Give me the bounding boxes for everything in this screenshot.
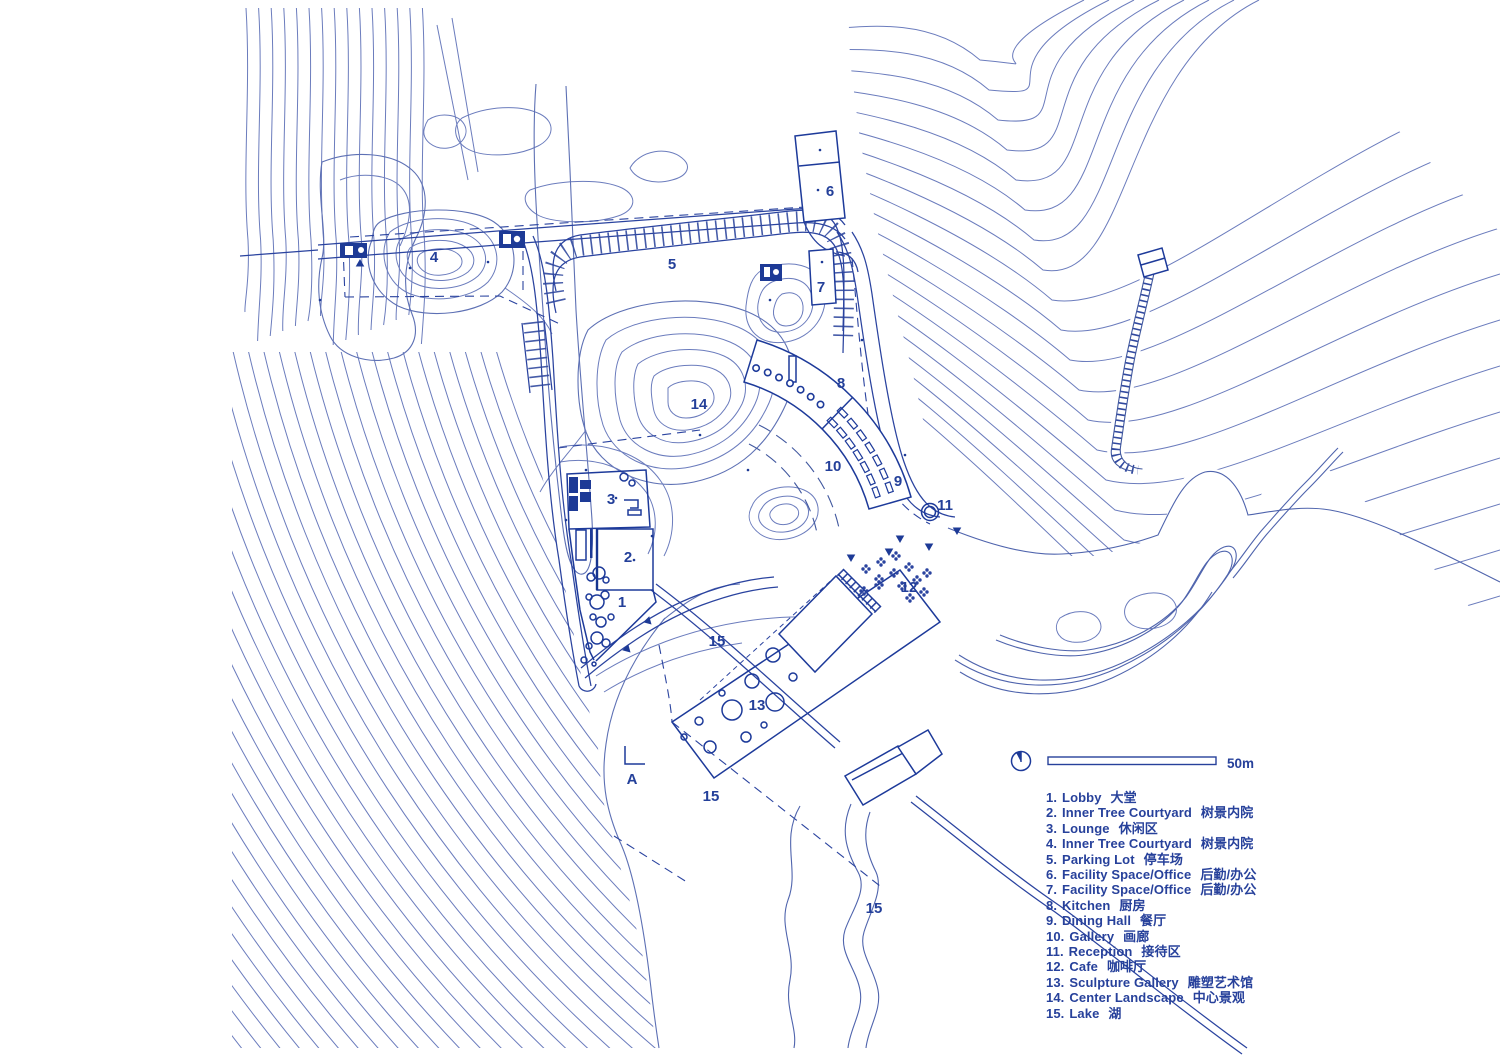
- legend-item: 5.Parking Lot停车场: [1046, 852, 1256, 867]
- contour-field-top-left: [245, 8, 425, 345]
- label-3: 3: [607, 491, 615, 508]
- legend-item: 10.Gallery画廊: [1046, 929, 1256, 944]
- plan-number-labels: 4 6 5 7 8 14 10 9 11 3 2 12 1 15 13 15 1…: [430, 183, 953, 917]
- legend-item: 2.Inner Tree Courtyard树景内院: [1046, 805, 1256, 820]
- legend-item: 14.Center Landscape中心景观: [1046, 990, 1256, 1005]
- site-plan-drawing: 4 6 5 7 8 14 10 9 11 3 2 12 1 15 13 15 1…: [0, 0, 1500, 1061]
- scale-bar: 50m: [1048, 756, 1254, 771]
- label-4: 4: [430, 249, 439, 266]
- label-7: 7: [817, 279, 825, 296]
- section-marker: [625, 746, 645, 764]
- contour-field-top-right: [452, 0, 1500, 645]
- label-11: 11: [937, 497, 953, 514]
- building-7: [809, 249, 858, 305]
- north-icon: [1012, 752, 1031, 771]
- legend-item: 3.Lounge休闲区: [1046, 821, 1256, 836]
- legend-item: 12.Cafe咖啡厅: [1046, 959, 1256, 974]
- scale-bar-label: 50m: [1227, 756, 1254, 771]
- terrain-blobs-top-left: [319, 18, 688, 574]
- stepped-path: [1111, 248, 1168, 471]
- legend-item: 15.Lake湖: [1046, 1006, 1256, 1021]
- label-section-a: A: [627, 771, 638, 788]
- label-8: 8: [837, 375, 845, 392]
- label-6: 6: [826, 183, 834, 200]
- contour-field-left: [0, 0, 1500, 1061]
- legend-item: 11.Reception接待区: [1046, 944, 1256, 959]
- legend-item: 13.Sculpture Gallery雕塑艺术馆: [1046, 975, 1256, 990]
- label-13: 13: [749, 697, 766, 714]
- legend-item: 8.Kitchen厨房: [1046, 898, 1256, 913]
- label-1: 1: [618, 594, 626, 611]
- label-5: 5: [668, 256, 676, 273]
- legend-item: 1.Lobby大堂: [1046, 790, 1256, 805]
- label-12: 12: [901, 579, 918, 596]
- label-15-lower: 15: [866, 900, 883, 917]
- label-2: 2: [624, 549, 632, 566]
- legend-item: 9.Dining Hall餐厅: [1046, 913, 1256, 928]
- dining-hall-complex: [744, 340, 911, 533]
- label-14: 14: [691, 396, 708, 413]
- label-10: 10: [825, 458, 842, 475]
- site-plan-canvas: 4 6 5 7 8 14 10 9 11 3 2 12 1 15 13 15 1…: [0, 0, 1500, 1061]
- legend-item: 6.Facility Space/Office后勤/办公: [1046, 867, 1256, 882]
- legend-item: 7.Facility Space/Office后勤/办公: [1046, 882, 1256, 897]
- reception-circle: [922, 504, 939, 521]
- legend-item: 4.Inner Tree Courtyard树景内院: [1046, 836, 1256, 851]
- label-9: 9: [894, 473, 902, 490]
- legend: 1.Lobby大堂 2.Inner Tree Courtyard树景内院 3.L…: [1046, 790, 1256, 1021]
- label-15-upper: 15: [709, 633, 726, 650]
- label-15-middle: 15: [703, 788, 720, 805]
